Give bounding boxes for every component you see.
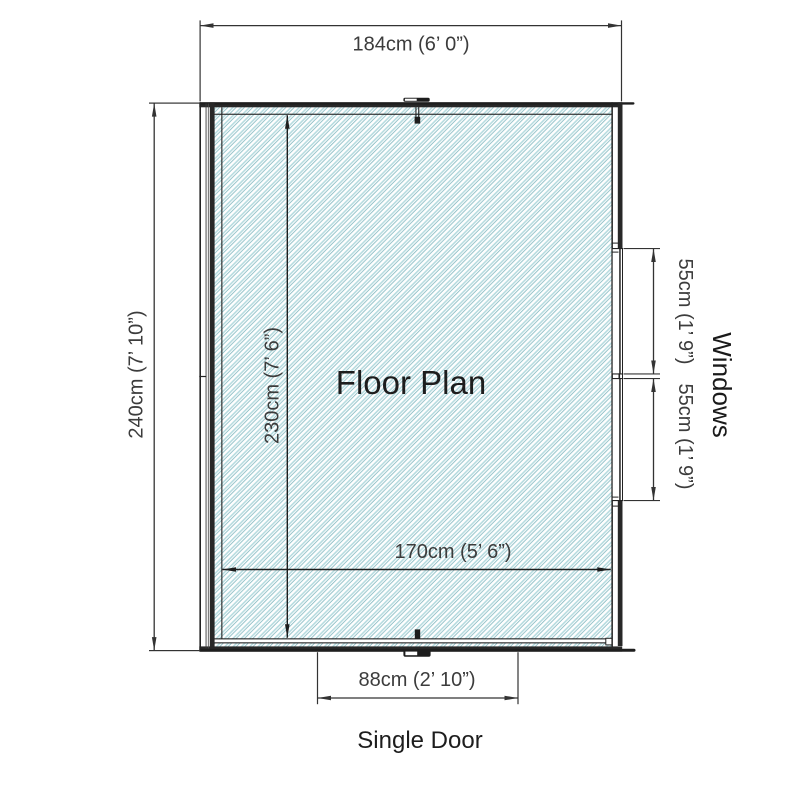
svg-text:Floor Plan: Floor Plan xyxy=(336,364,486,401)
svg-text:170cm (5’ 6”): 170cm (5’ 6”) xyxy=(394,541,511,563)
svg-text:230cm (7’ 6”): 230cm (7’ 6”) xyxy=(262,327,284,444)
svg-text:240cm (7’ 10”): 240cm (7’ 10”) xyxy=(126,310,148,438)
svg-text:Windows: Windows xyxy=(707,332,737,437)
svg-text:88cm (2’ 10”): 88cm (2’ 10”) xyxy=(358,669,475,691)
svg-text:55cm (1’ 9”): 55cm (1’ 9”) xyxy=(674,384,696,490)
svg-text:184cm (6’ 0”): 184cm (6’ 0”) xyxy=(352,34,469,56)
svg-text:55cm (1’ 9”): 55cm (1’ 9”) xyxy=(674,259,696,365)
svg-text:Single Door: Single Door xyxy=(357,727,482,754)
